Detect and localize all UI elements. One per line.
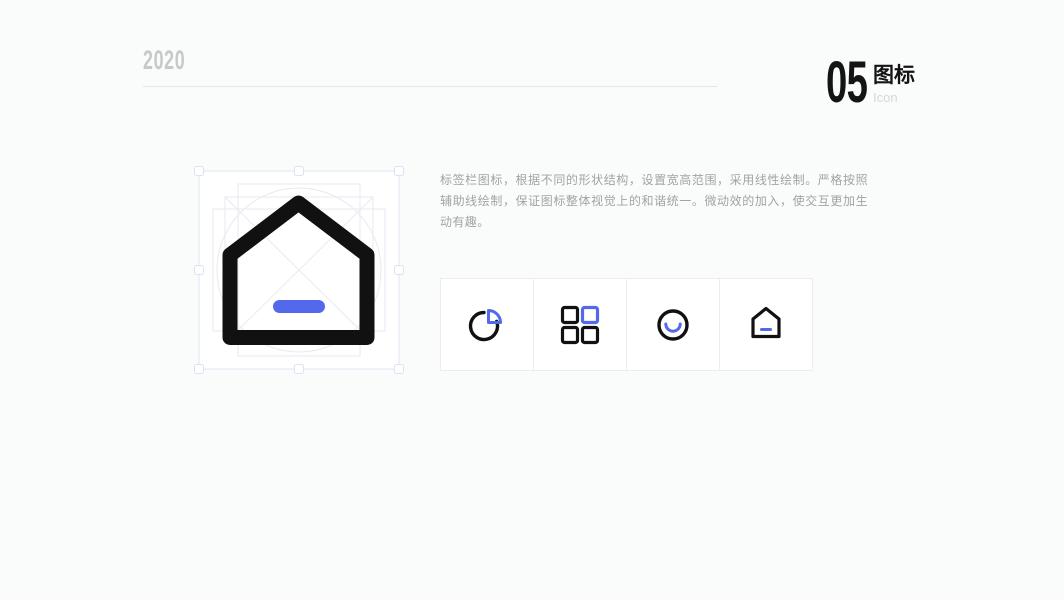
selection-handle <box>295 167 304 176</box>
selection-handle <box>395 266 404 275</box>
header-divider-line <box>143 86 717 87</box>
icon-cell-pie-chart <box>440 278 534 371</box>
selection-handle <box>295 365 304 374</box>
section-title: 图标 <box>873 64 915 87</box>
category-grid-icon <box>558 303 602 347</box>
section-header: 05 图标 Icon <box>826 58 915 108</box>
icon-gallery <box>440 278 813 371</box>
section-subtitle: Icon <box>873 91 915 104</box>
smile-circle-icon <box>651 303 695 347</box>
year-label: 2020 <box>143 47 185 74</box>
section-titles: 图标 Icon <box>873 64 915 104</box>
home-icon <box>744 303 788 347</box>
presentation-slide: { "header": { "year": "2020", "section_n… <box>0 0 1064 600</box>
icon-cell-smile-circle <box>626 278 720 371</box>
selection-handle <box>195 266 204 275</box>
selection-handle <box>395 365 404 374</box>
pie-chart-icon <box>465 303 509 347</box>
home-icon-door-bar <box>273 300 325 313</box>
selection-handle <box>195 365 204 374</box>
icon-artboard <box>189 161 410 382</box>
selection-handle <box>195 167 204 176</box>
icon-cell-home <box>719 278 813 371</box>
description-text: 标签栏图标，根据不同的形状结构，设置宽高范围，采用线性绘制。严格按照辅助线绘制，… <box>440 170 868 233</box>
section-number: 05 <box>826 58 855 108</box>
icon-cell-category-grid <box>533 278 627 371</box>
selection-handle <box>395 167 404 176</box>
